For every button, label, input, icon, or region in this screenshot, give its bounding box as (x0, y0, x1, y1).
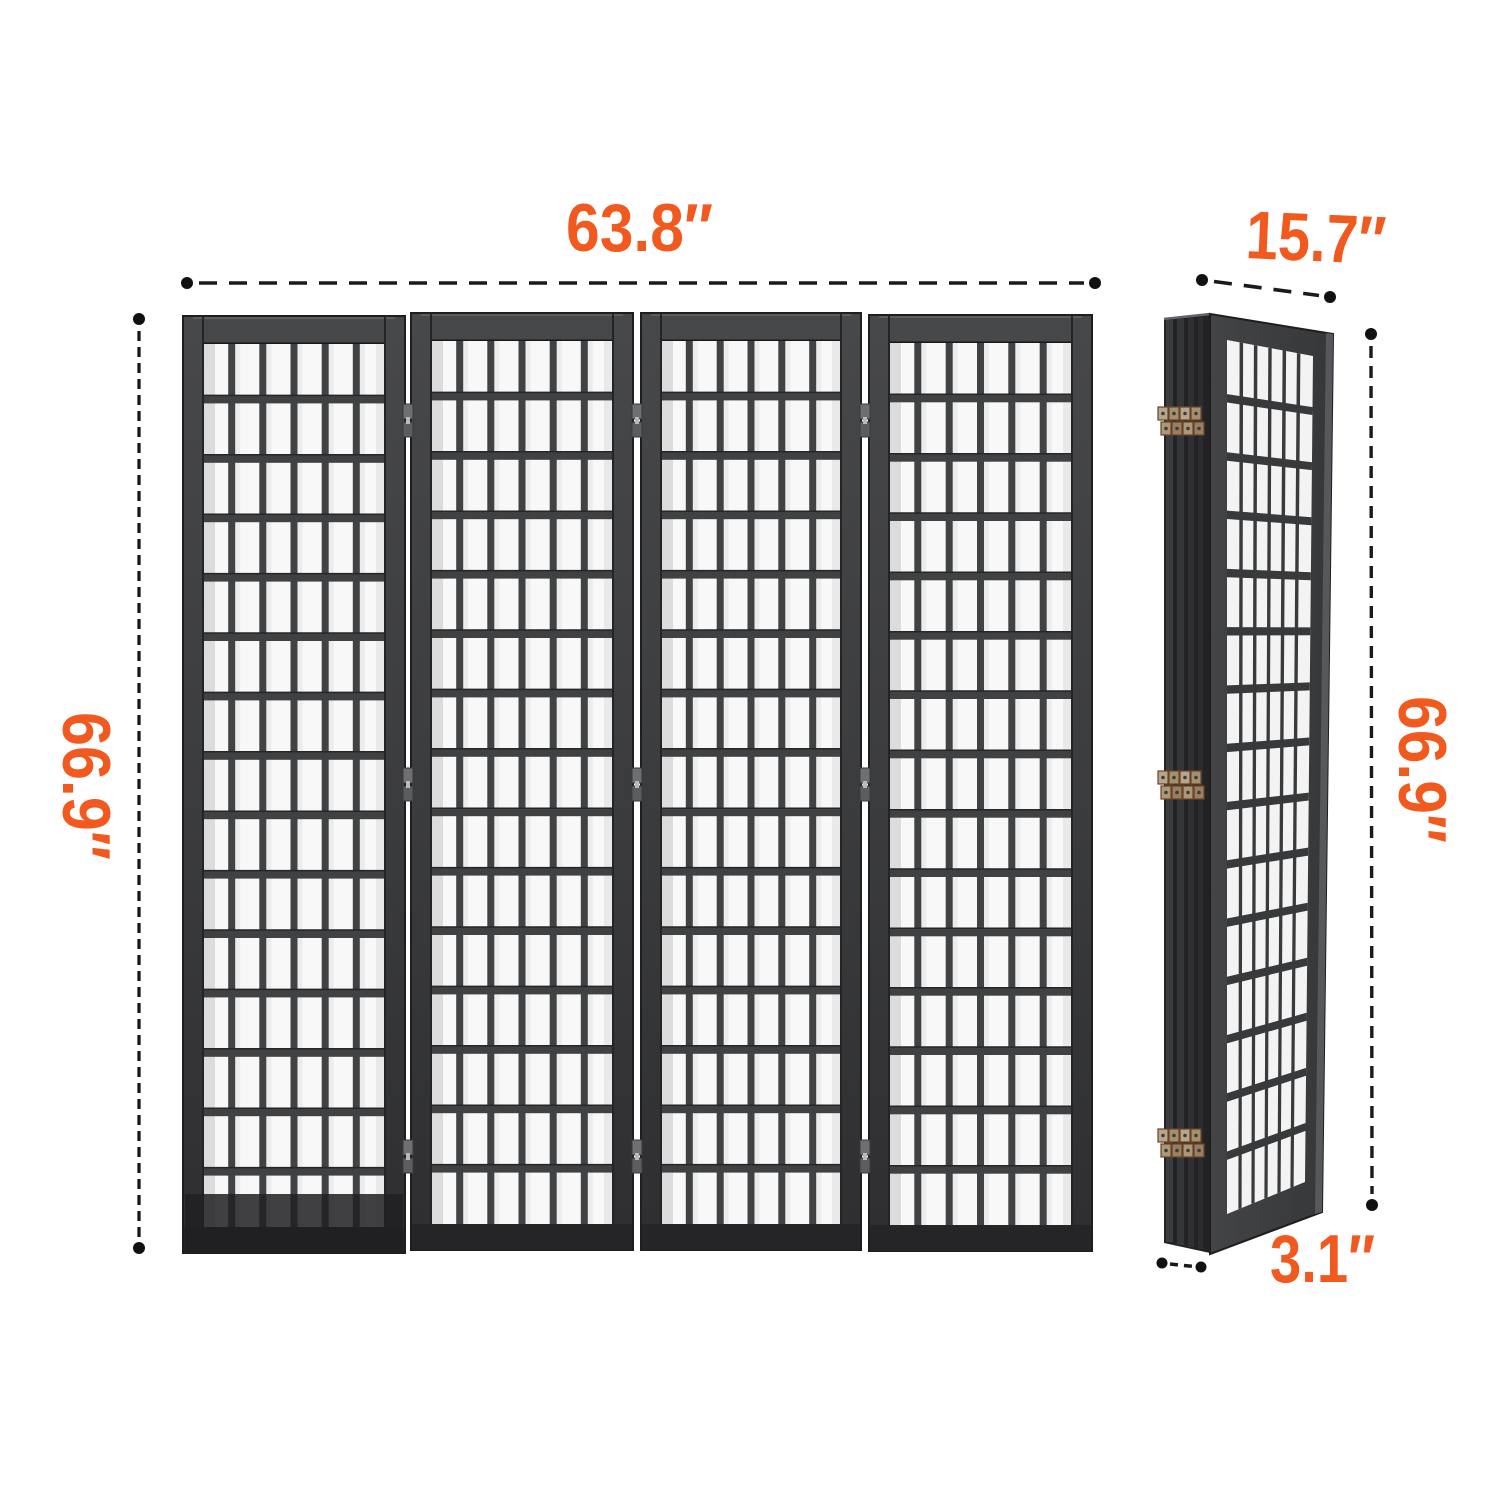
svg-text:15.7″: 15.7″ (1244, 197, 1387, 279)
svg-text:66.9″: 66.9″ (48, 712, 124, 860)
svg-text:63.8″: 63.8″ (566, 190, 713, 266)
svg-text:3.1″: 3.1″ (1270, 1221, 1375, 1297)
svg-text:66.9″: 66.9″ (1384, 696, 1460, 843)
